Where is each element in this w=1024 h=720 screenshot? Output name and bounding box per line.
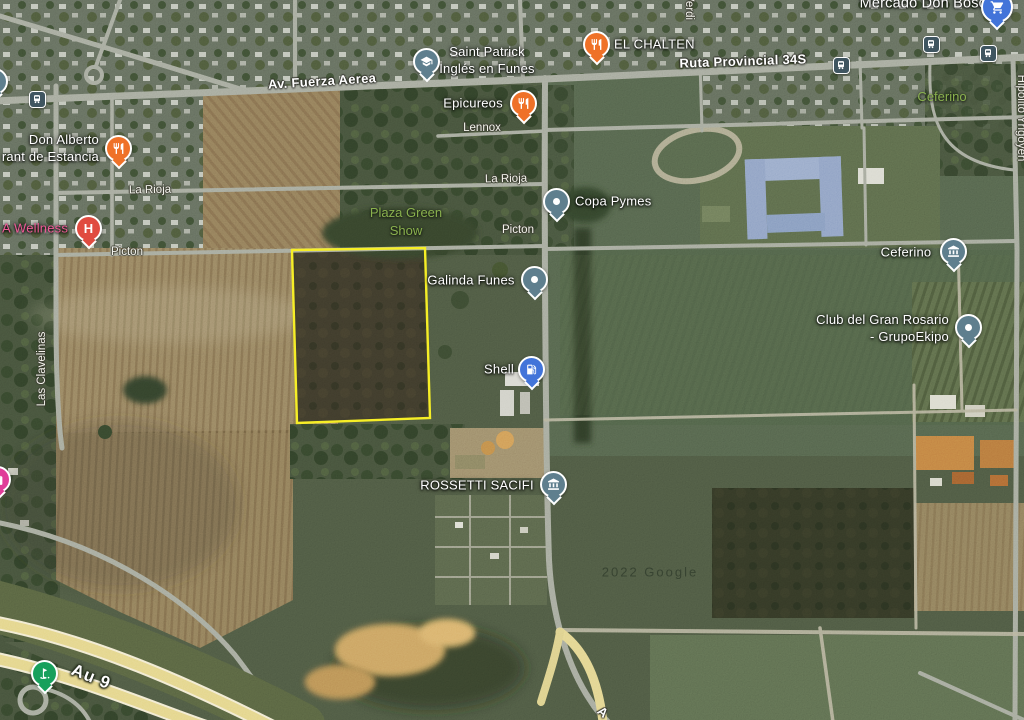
poi-pin-club-gran-rosario[interactable]	[955, 314, 982, 341]
bus-icon	[32, 94, 42, 104]
park-label-plaza-green-show[interactable]: Plaza Green Show	[370, 204, 442, 240]
poi-pin-shell[interactable]	[518, 356, 545, 383]
street-label-la-rioja-west: La Rioja	[129, 184, 171, 197]
poi-pin-copa-pymes[interactable]	[543, 188, 570, 215]
restaurant-icon	[590, 38, 603, 51]
bus-icon	[836, 60, 846, 70]
generic-poi-icon	[553, 198, 560, 205]
poi-pin-ceferino[interactable]	[940, 238, 967, 265]
poi-label-mercado-don-bosco[interactable]: Mercado Don Bosco	[860, 0, 995, 13]
poi-label-don-alberto[interactable]: Don Alberto rant de Estancia	[2, 131, 99, 165]
bus-stop-icon[interactable]	[833, 57, 850, 74]
poi-label-saint-patrick[interactable]: Saint Patrick Inglés en Funes	[439, 43, 535, 77]
poi-pin-rossetti-sacifi[interactable]	[540, 471, 567, 498]
poi-pin-saint-patrick[interactable]	[413, 48, 440, 75]
street-label-hipolito-yrigoyen: Hipólito Yrigoyen	[1015, 75, 1024, 162]
golf-icon	[38, 667, 51, 680]
street-label-lennox: Lennox	[463, 122, 501, 134]
bus-stop-icon[interactable]	[923, 36, 940, 53]
gas-station-icon	[525, 363, 538, 376]
landmark-icon	[947, 245, 960, 258]
poi-pin-don-alberto[interactable]	[105, 135, 132, 162]
poi-label-club-gran-rosario[interactable]: Club del Gran Rosario - GrupoEkipo	[816, 311, 949, 345]
hospital-icon: H	[84, 222, 93, 235]
poi-label-galinda-funes[interactable]: Galinda Funes	[427, 272, 514, 289]
poi-label-el-chalten[interactable]: EL CHALTEN	[614, 36, 695, 53]
street-label-verdi: Verdi	[683, 0, 695, 20]
poi-label-ceferino[interactable]: Ceferino	[881, 244, 932, 261]
poi-pin-a-wellness[interactable]: H	[75, 215, 102, 242]
imagery-watermark: 2022 Google	[602, 565, 698, 580]
poi-label-shell[interactable]: Shell	[484, 361, 514, 378]
poi-pin-el-chalten[interactable]	[583, 31, 610, 58]
park-label-ceferino[interactable]: Ceferino	[917, 88, 966, 106]
street-label-la-rioja-east: La Rioja	[485, 173, 527, 186]
street-label-picton-east: Picton	[502, 224, 534, 236]
bus-icon	[926, 39, 936, 49]
street-label-las-clavelinas: Las Clavelinas	[36, 332, 48, 407]
street-label-picton-west: Picton	[111, 246, 143, 258]
poi-label-rossetti-sacifi[interactable]: ROSSETTI SACIFI	[420, 477, 534, 494]
generic-poi-icon	[965, 324, 972, 331]
poi-label-copa-pymes[interactable]: Copa Pymes	[575, 193, 651, 210]
landmark-icon	[547, 478, 560, 491]
bus-stop-icon[interactable]	[980, 45, 997, 62]
bus-icon	[983, 48, 993, 58]
restaurant-icon	[517, 97, 530, 110]
shopping-cart-icon	[990, 0, 1005, 15]
restaurant-icon	[112, 142, 125, 155]
generic-poi-icon	[531, 276, 538, 283]
poi-pin-galinda-funes[interactable]	[521, 266, 548, 293]
bus-stop-icon[interactable]	[29, 91, 46, 108]
school-icon	[420, 55, 433, 68]
poi-label-a-wellness[interactable]: A Wellness	[2, 220, 68, 237]
map-viewport: Mercado Don Bosco Saint Patrick Inglés e…	[0, 0, 1024, 720]
poi-pin-golf[interactable]	[31, 660, 58, 687]
poi-pin-epicureos[interactable]	[510, 90, 537, 117]
poi-label-epicureos[interactable]: Epicureos	[443, 95, 503, 112]
shopping-bag-icon	[0, 473, 4, 486]
